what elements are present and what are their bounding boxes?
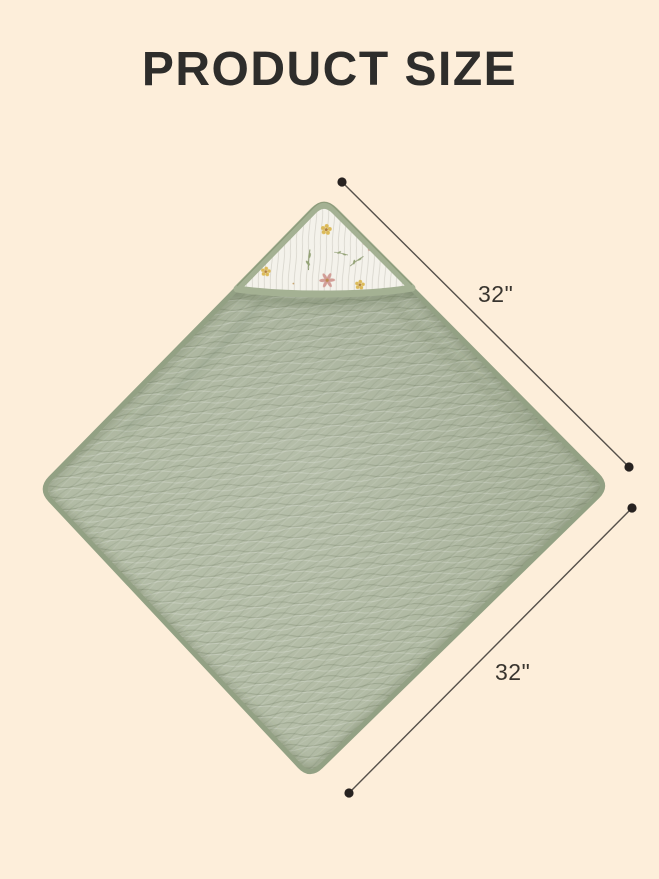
product-size-page: PRODUCT SIZE	[0, 0, 659, 879]
towel-size-graphic	[0, 0, 659, 879]
dimension-endpoint-dot	[627, 503, 636, 512]
dimension-endpoint-dot	[344, 788, 353, 797]
dimension-label-bottom-right: 32"	[495, 659, 530, 686]
dimension-endpoint-dot	[337, 177, 346, 186]
dimension-endpoint-dot	[624, 462, 633, 471]
hood	[237, 202, 412, 294]
dimension-label-top-right: 32"	[478, 281, 513, 308]
